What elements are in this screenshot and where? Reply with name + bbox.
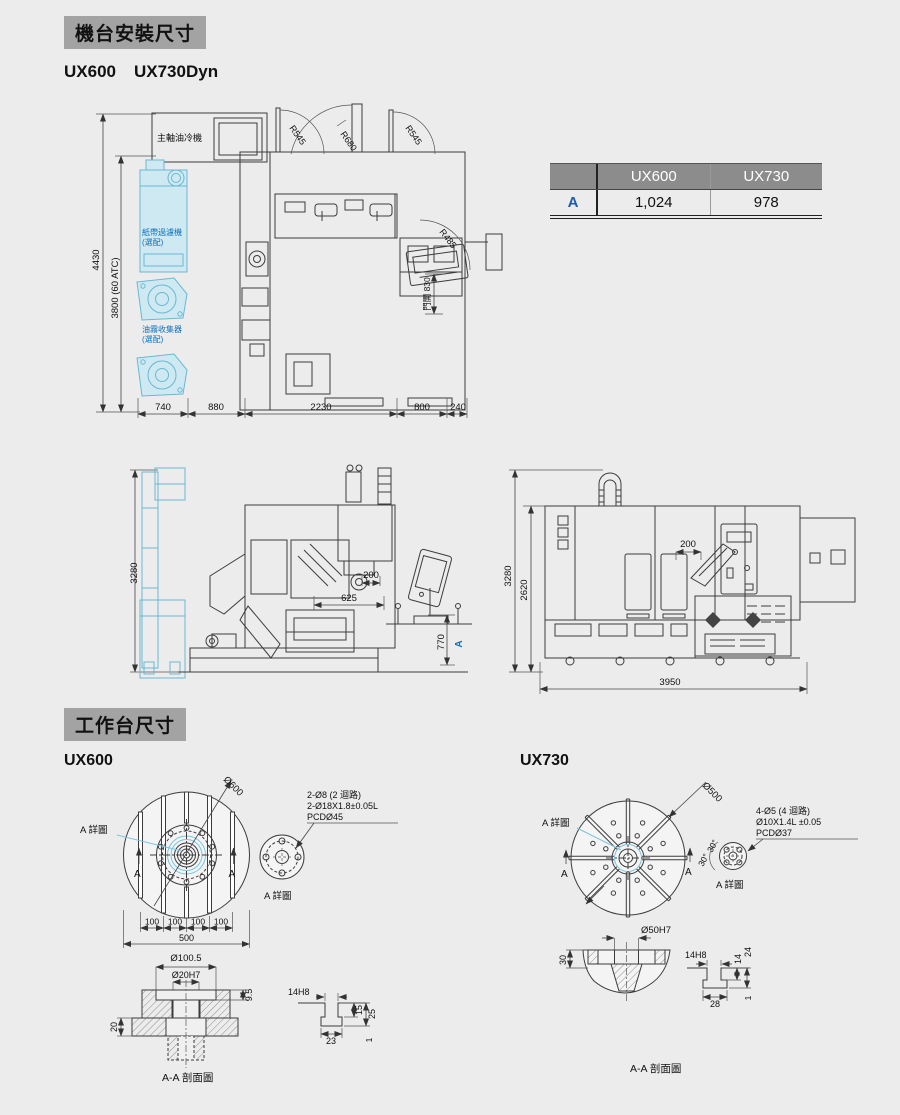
table-corner-cell xyxy=(550,164,598,189)
oil-mist-collector-shape xyxy=(137,278,187,320)
dim-9-5: 9.5 xyxy=(244,989,254,1002)
section-mark-a-left: A xyxy=(134,869,141,880)
table-value-ux600: 1,024 xyxy=(598,190,710,215)
ux600-section-drawing: Ø100.5 Ø20H7 9.5 20 14H8 15 xyxy=(110,948,390,1088)
dim-14h8: 14H8 xyxy=(685,950,707,960)
operator-panel-topview: R485 門開 830 xyxy=(406,220,470,314)
section-mark-a-right: A xyxy=(685,867,692,878)
dim-r545-left: R545 xyxy=(287,123,308,146)
side-view-drawing: 3280 xyxy=(128,448,498,708)
dim-500: 500 xyxy=(179,933,194,943)
dim-1-land: 1 xyxy=(364,1037,374,1042)
dim-100-2: 100 xyxy=(168,917,182,927)
ux730-section-caption: A-A 剖面圖 xyxy=(630,1062,681,1075)
chip-conveyor-optional xyxy=(140,468,185,678)
table-row-label: A xyxy=(550,190,598,215)
dim-740: 740 xyxy=(155,402,171,413)
front-view-dims: 200 3950 xyxy=(540,539,807,694)
dim-dia-600: Ø600 xyxy=(221,774,245,798)
machine-body-topview xyxy=(240,152,502,410)
front-view-drawing: 3280 2620 xyxy=(495,448,865,708)
section-mark-a-side: A xyxy=(454,640,465,647)
dim-14h8: 14H8 xyxy=(288,987,310,997)
section-title-installation: 機台安裝尺寸 xyxy=(64,16,206,49)
dim-200-front: 200 xyxy=(680,539,696,550)
dim-100-1: 100 xyxy=(145,917,159,927)
callout-holes: 2-Ø8 (2 迴路) xyxy=(307,789,361,800)
paper-belt-filter-label: 紙帶過濾機 xyxy=(142,227,182,237)
detail-caption: A 詳圖 xyxy=(264,890,291,902)
dim-240: 240 xyxy=(450,402,466,413)
dim-r680: R680 xyxy=(338,129,359,152)
spindle-oil-cooler-label: 主軸油冷機 xyxy=(157,132,202,143)
ux600-section-caption: A-A 剖面圖 xyxy=(162,1071,213,1084)
front-view-height-dims: 3280 2620 xyxy=(503,470,603,672)
top-view-bottom-dims: 740 880 2230 800 240 xyxy=(138,398,467,418)
section-mark-a-left: A xyxy=(561,869,568,880)
dim-dia-50h7: Ø50H7 xyxy=(641,925,671,936)
ux600-section-body xyxy=(132,980,238,1068)
ux730-tslot-detail: 14H8 14 24 28 1 xyxy=(685,947,753,1009)
table-header-row: UX600 UX730 xyxy=(550,163,822,190)
oil-mist-collector-label: 油霧收集器 xyxy=(142,324,182,334)
dim-1-land: 1 xyxy=(743,995,753,1000)
ux730-dia-callout: Ø500 xyxy=(669,780,724,817)
dim-30: 30 xyxy=(558,955,568,965)
dim-200-side: 200 xyxy=(363,570,379,581)
dim-dia-500: Ø500 xyxy=(700,780,724,804)
table-header-ux730: UX730 xyxy=(710,164,823,189)
section-mark-a-right: A xyxy=(229,869,236,880)
model-names: UX600UX730Dyn xyxy=(64,62,218,82)
dimension-a-table: UX600 UX730 A 1,024 978 xyxy=(550,163,822,219)
table-header-ux600: UX600 xyxy=(598,164,710,189)
callout-bore: 2-Ø18X1.8±0.05L xyxy=(307,801,378,811)
callout-pcd: PCDØ37 xyxy=(756,828,792,838)
callout-bore: Ø10X1.4L ±0.05 xyxy=(756,817,821,827)
dim-30deg-2: 30° xyxy=(705,838,720,854)
dim-800: 800 xyxy=(414,402,430,413)
paper-belt-filter-shape xyxy=(140,160,187,272)
dim-door-open-830: 門開 830 xyxy=(422,277,432,311)
dim-100-4: 100 xyxy=(214,917,228,927)
ux600-table-drawing: Ø600 A A A 詳圖 100 100 100 100 500 xyxy=(70,760,400,960)
dim-3800-atc: 3800 (60 ATC) xyxy=(110,257,121,318)
detail-caption: A 詳圖 xyxy=(716,879,743,891)
dim-14: 14 xyxy=(733,954,743,964)
ux600-detail-view: A 詳圖 2-Ø8 (2 迴路) 2-Ø18X1.8±0.05L PCDØ45 xyxy=(260,789,398,902)
dim-3950: 3950 xyxy=(659,677,680,688)
machine-body-sideview xyxy=(178,465,472,672)
ux730-section-drawing: Ø50H7 30 14H8 14 24 28 1 A-A 剖面圖 xyxy=(555,920,855,1085)
dim-30deg-1: 30° xyxy=(696,852,711,868)
dim-23: 23 xyxy=(326,1036,336,1046)
section-title-worktable: 工作台尺寸 xyxy=(64,708,186,741)
dim-3280-front: 3280 xyxy=(503,565,514,586)
dim-dia-100-5: Ø100.5 xyxy=(170,953,201,964)
dim-r545-right: R545 xyxy=(403,123,424,146)
detail-ref-label: A 詳圖 xyxy=(80,824,107,836)
dim-3280-side: 3280 xyxy=(129,562,140,583)
dim-880: 880 xyxy=(208,402,224,413)
model-ux600: UX600 xyxy=(64,62,116,81)
dim-25: 25 xyxy=(367,1009,377,1019)
table-value-row: A 1,024 978 xyxy=(550,190,822,215)
top-view-drawing: 4430 3800 (60 ATC) 主軸油冷機 xyxy=(90,92,530,437)
spindle-oil-cooler: 主軸油冷機 xyxy=(152,113,267,162)
ux600-tslot-detail: 14H8 15 25 23 1 xyxy=(288,987,377,1046)
oil-mist-collector-optional: (選配) xyxy=(142,334,164,344)
paper-belt-filter-optional: (選配) xyxy=(142,237,164,247)
ux730-section-body: Ø50H7 30 xyxy=(558,925,671,1002)
callout-holes: 4-Ø5 (4 迴路) xyxy=(756,805,810,816)
dim-2230: 2230 xyxy=(310,402,331,413)
model-ux730dyn: UX730Dyn xyxy=(134,62,218,81)
table-value-ux730: 978 xyxy=(710,190,823,215)
dim-24: 24 xyxy=(743,947,753,957)
dim-2620: 2620 xyxy=(519,579,530,600)
detail-ref-label: A 詳圖 xyxy=(542,817,569,829)
dim-15: 15 xyxy=(354,1005,364,1015)
dim-28: 28 xyxy=(710,999,720,1009)
ux730-detail-view: 30° 30° A 詳圖 4-Ø5 (4 迴路) Ø10X1.4L ±0.05 … xyxy=(696,805,858,891)
optional-units: 紙帶過濾機 (選配) 油霧收集器 (選配) xyxy=(137,160,187,396)
callout-pcd: PCDØ45 xyxy=(307,812,343,822)
dim-dia-20h7: Ø20H7 xyxy=(172,970,201,980)
dim-20: 20 xyxy=(110,1022,119,1032)
dim-100-3: 100 xyxy=(191,917,205,927)
dim-770: 770 xyxy=(436,634,447,650)
machine-body-frontview xyxy=(545,473,855,665)
dim-4430: 4430 xyxy=(91,249,102,270)
catalog-page: 機台安裝尺寸 UX600UX730Dyn UX600 UX730 A 1,024… xyxy=(0,0,900,1115)
door-swing-arcs: R545 R680 R545 xyxy=(276,104,435,154)
dim-625: 625 xyxy=(341,593,357,604)
